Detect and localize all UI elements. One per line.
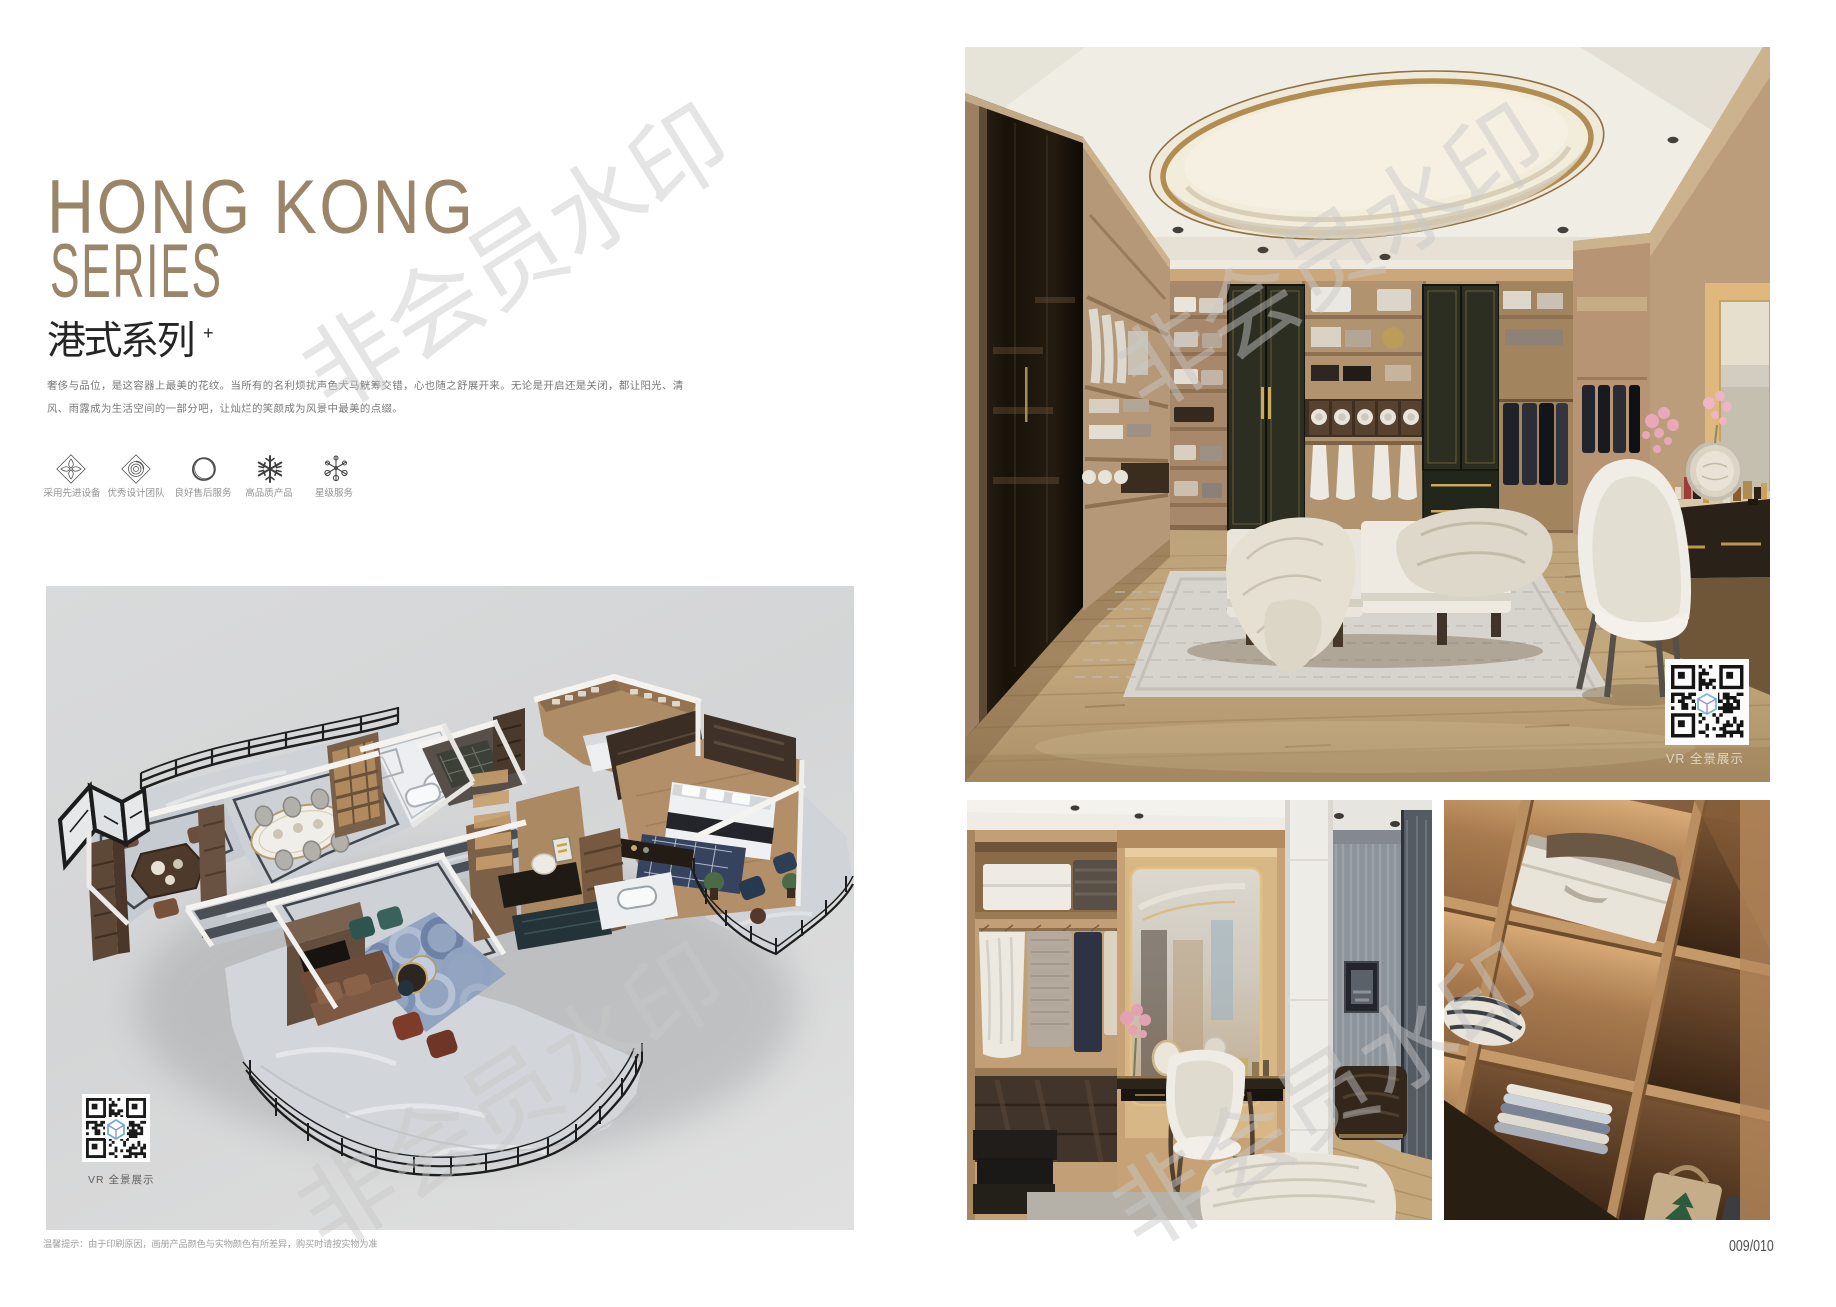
svg-text:VR 全景展示: VR 全景展示 <box>88 1173 155 1186</box>
svg-text:VR 全景展示: VR 全景展示 <box>1666 751 1744 766</box>
